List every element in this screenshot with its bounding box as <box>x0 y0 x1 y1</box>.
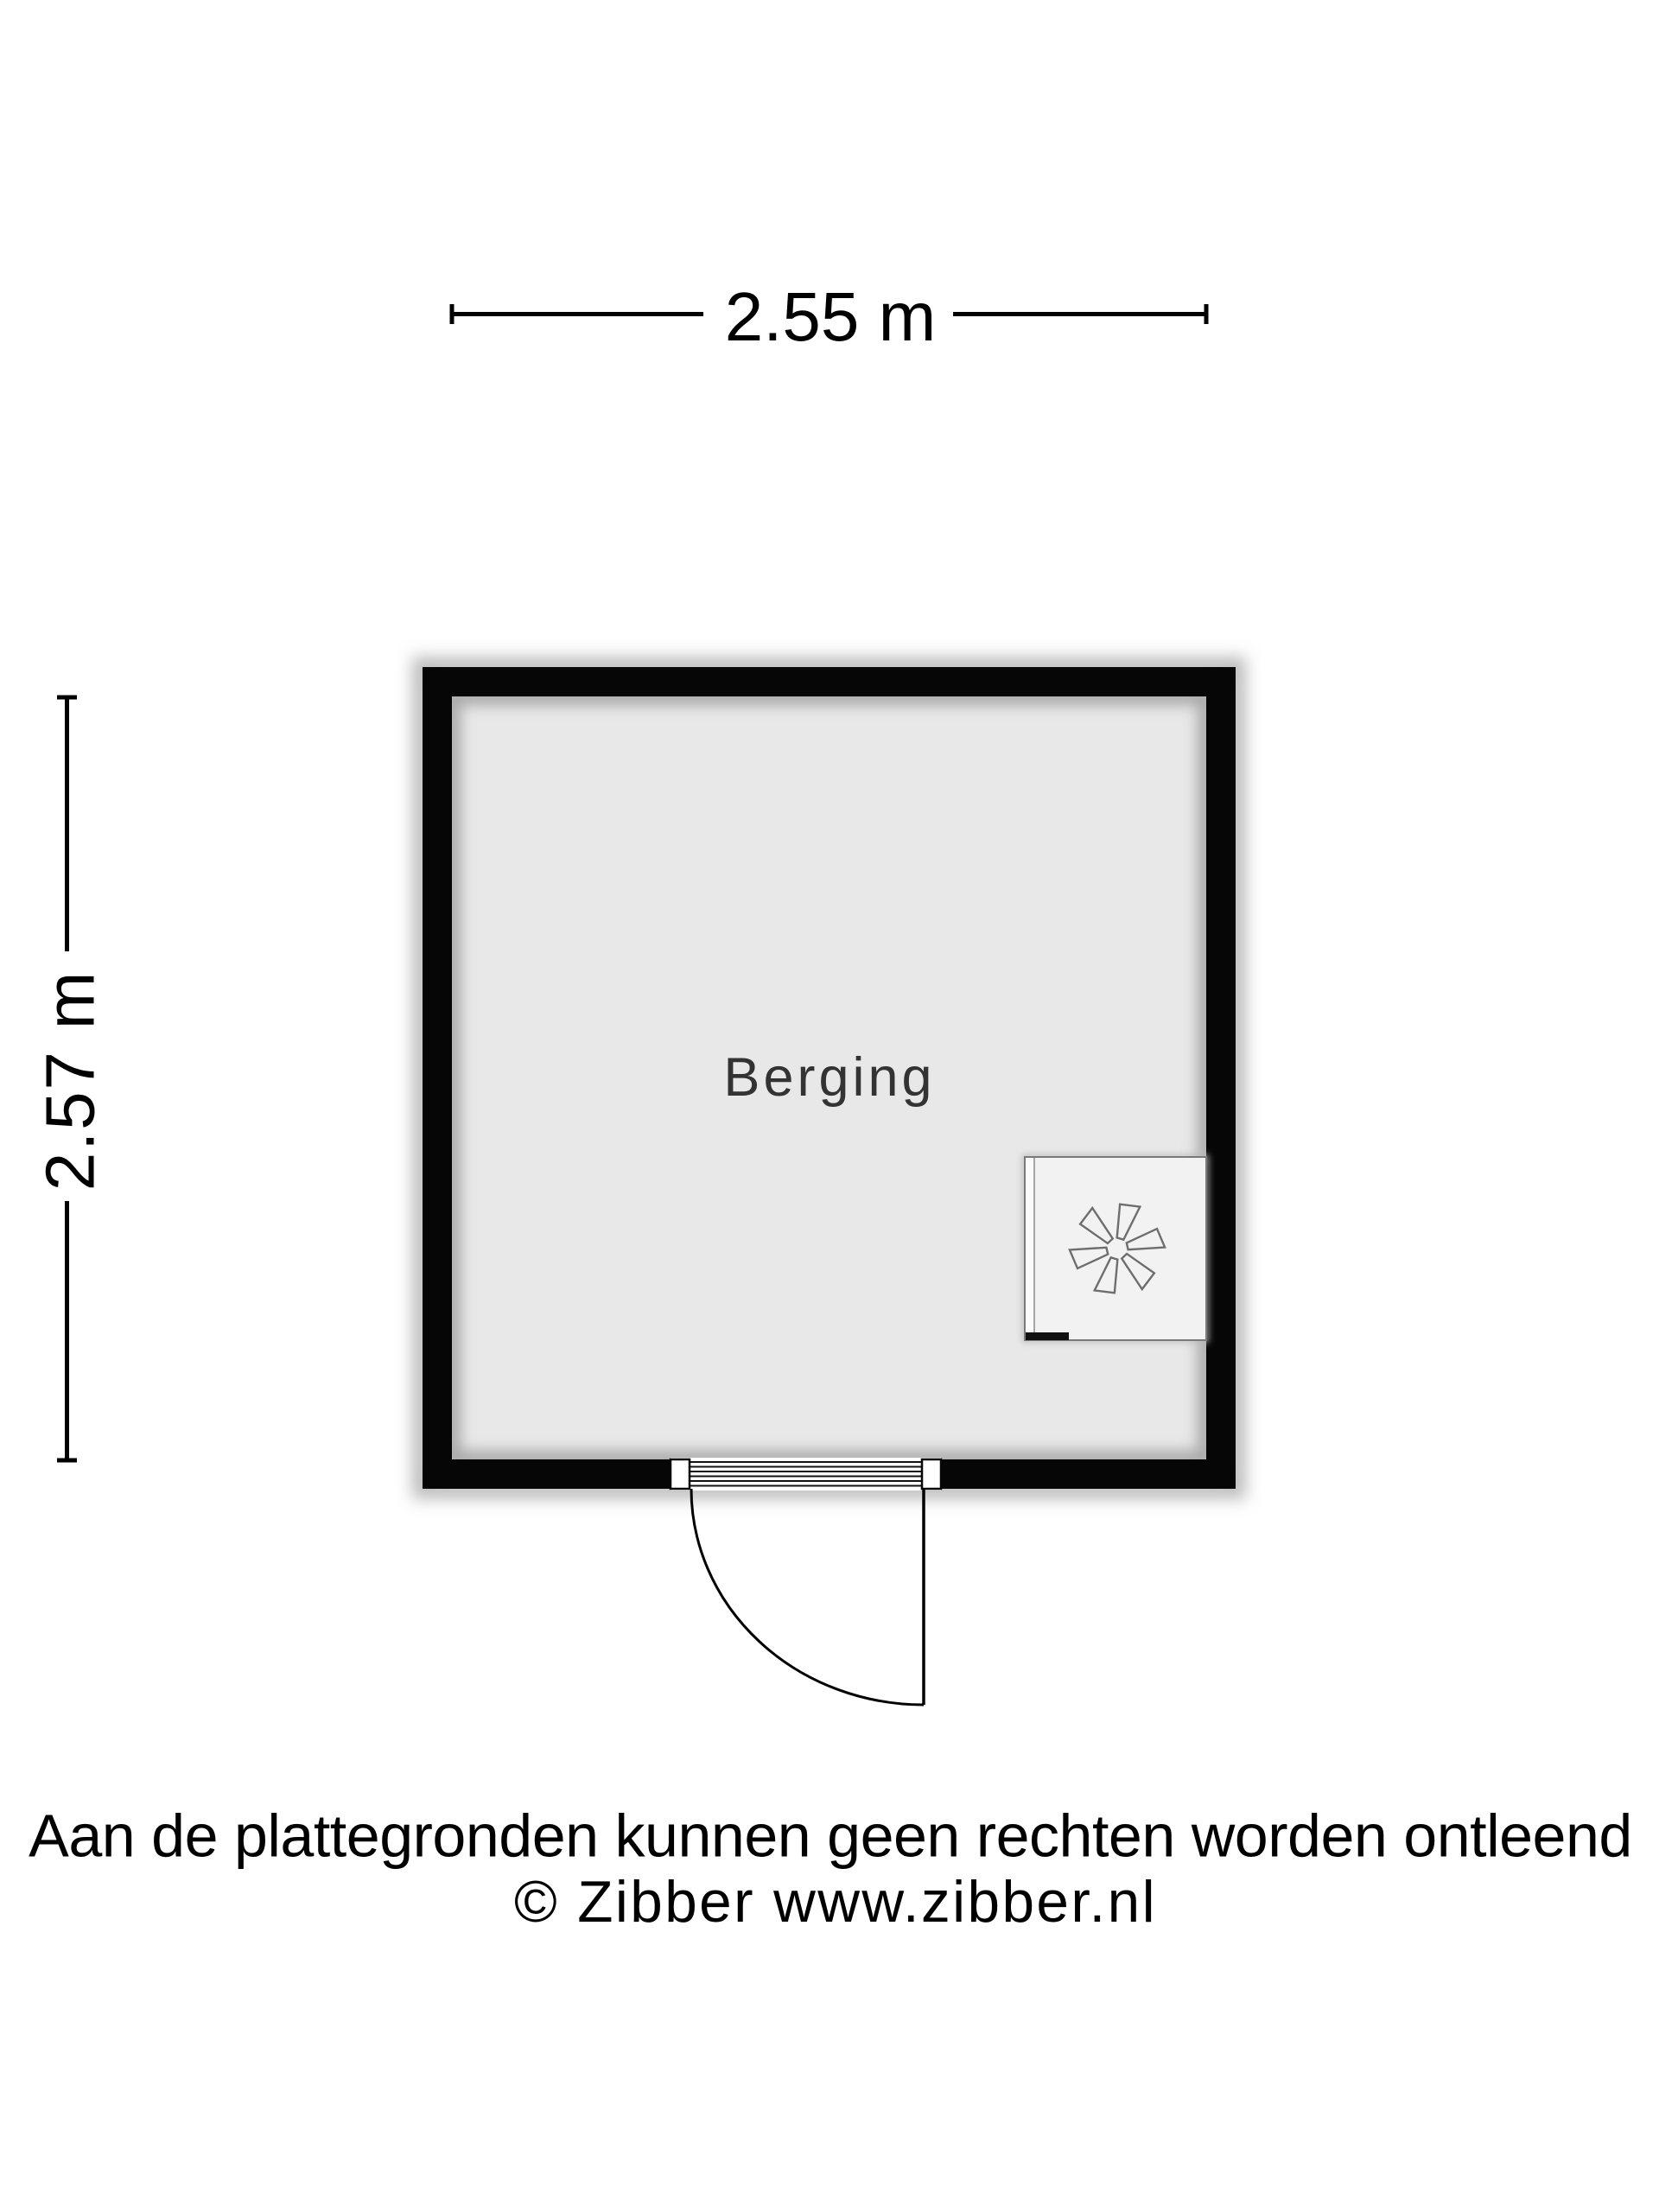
svg-text:Aan de plattegronden kunnen ge: Aan de plattegronden kunnen geen rechten… <box>29 1802 1632 1870</box>
svg-text:2.57 m: 2.57 m <box>32 970 109 1191</box>
svg-text:2.55 m: 2.55 m <box>725 278 937 355</box>
svg-text:© Zibber www.zibber.nl: © Zibber www.zibber.nl <box>514 1870 1157 1935</box>
svg-text:Berging: Berging <box>723 1047 935 1108</box>
